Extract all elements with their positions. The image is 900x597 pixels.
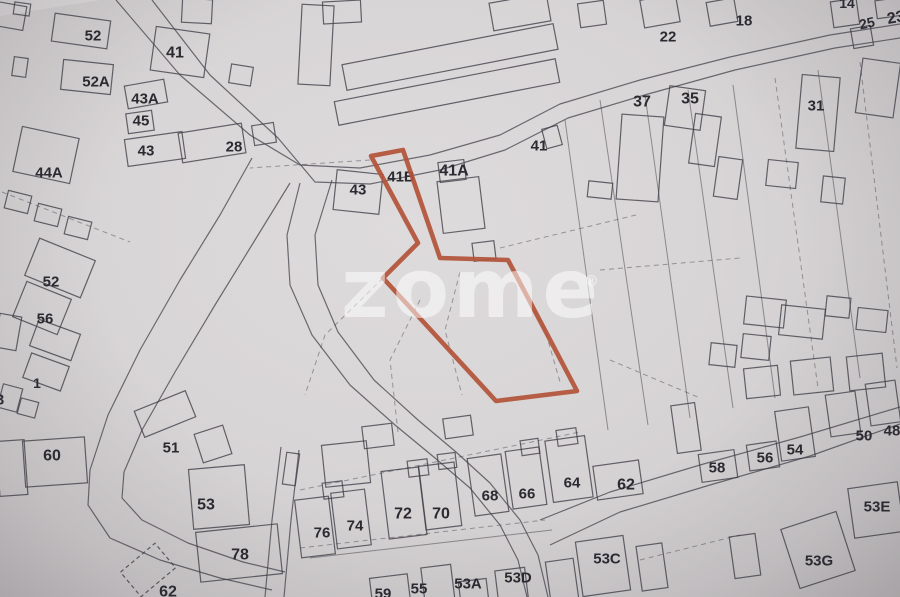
parcel-boundary-line (250, 160, 370, 168)
parcel-number-label: 52 (43, 274, 60, 291)
parcel-number-label: 58 (709, 460, 726, 477)
building-outline (587, 181, 613, 199)
building-outline (467, 454, 509, 516)
building-outline (51, 13, 110, 49)
building-outline (25, 238, 96, 298)
building-outline (846, 353, 885, 391)
parcel-boundary-line (600, 100, 648, 425)
parcel-number-label: 31 (808, 98, 825, 115)
parcel-number-label: 25 (858, 14, 877, 33)
building-outline (577, 0, 606, 27)
building-outline (636, 543, 668, 591)
parcel-number-label: 23 (886, 8, 900, 28)
building-outline (706, 0, 738, 26)
building-outline (12, 57, 29, 78)
building-outline (282, 452, 299, 485)
parcel-number-label: 62 (617, 477, 635, 494)
building-outline (437, 177, 485, 234)
building-outline (640, 0, 680, 28)
parcel-number-label: 78 (231, 547, 249, 564)
building-outline (334, 59, 559, 125)
parcel-boundary-line (600, 258, 740, 270)
parcel-number-label: 18 (736, 13, 753, 30)
building-outline (713, 157, 742, 200)
parcel-number-label: 56 (37, 311, 54, 328)
building-outline (671, 403, 701, 454)
building-outline (124, 132, 185, 167)
building-outline (64, 216, 92, 239)
parcel-number-label: 62 (159, 584, 177, 597)
parcel-number-label: 41 (166, 45, 184, 62)
parcel-number-label: 50 (856, 428, 873, 445)
parcel-number-label: 43 (138, 143, 155, 160)
parcel-number-label: 66 (519, 486, 536, 503)
cadastral-map-photo: 524152A43A45432844A525613605153786276747… (0, 0, 900, 597)
parcel-number-label: 43 (350, 182, 367, 199)
parcel-number-label: 70 (432, 506, 450, 523)
building-outline (825, 296, 851, 318)
parcel-number-label: 53G (805, 553, 833, 570)
parcel-number-label: 1 (33, 375, 41, 391)
parcel-number-label: 55 (411, 581, 428, 597)
parcel-boundary-line (775, 78, 818, 388)
building-outline (443, 415, 474, 439)
main-road-lower-edge (152, 0, 900, 184)
building-outline (616, 114, 664, 202)
building-outline (744, 365, 781, 398)
parcel-number-label: 37 (633, 94, 651, 111)
parcel-number-label: 45 (133, 113, 150, 130)
west-road-east-edge (122, 183, 290, 572)
building-outline (729, 533, 761, 578)
parcel-number-label: 64 (564, 475, 581, 492)
parcel-boundary-line (860, 62, 897, 368)
building-outline (545, 558, 578, 597)
parcel-number-label: 60 (43, 448, 61, 465)
building-outline (790, 357, 833, 395)
parcel-number-label: 48 (884, 423, 900, 440)
building-outline (545, 436, 593, 503)
map-canvas: 524152A43A45432844A525613605153786276747… (0, 0, 900, 597)
parcel-number-label: 53E (864, 499, 891, 516)
parcel-number-label: 74 (347, 518, 364, 535)
parcel-number-label: 54 (787, 442, 804, 459)
parcel-number-label: 22 (660, 29, 677, 46)
parcel-number-label: 52 (85, 28, 102, 45)
building-outline (252, 122, 277, 145)
building-outline (781, 512, 855, 589)
parcel-boundary-line (733, 85, 775, 398)
building-outline (689, 113, 722, 166)
parcel-boundary-line (818, 70, 860, 378)
parcel-number-label: 43A (131, 91, 159, 108)
building-outline (298, 4, 334, 86)
south-road-lower-edge (550, 424, 900, 545)
building-outline (17, 398, 39, 418)
parcel-number-label: 51 (163, 440, 180, 457)
building-outline (766, 160, 799, 189)
parcel-number-label: 59 (375, 586, 392, 597)
building-outline (34, 203, 62, 226)
building-outline (709, 343, 737, 368)
parcel-number-label: 41A (439, 163, 469, 180)
parcel-boundary-line (640, 535, 740, 560)
parcel-number-label: 56 (757, 450, 774, 467)
building-outline (181, 0, 212, 24)
building-outline (322, 0, 361, 24)
parcel-number-label: 52A (82, 74, 110, 91)
parcel-number-label: 53D (504, 570, 532, 587)
parcel-number-label: 72 (394, 506, 412, 523)
building-outline (855, 58, 900, 118)
parcel-number-label: 41 (531, 138, 548, 155)
building-outline (23, 353, 69, 391)
parcel-number-label: 53 (197, 497, 215, 514)
parcel-number-label: 53A (454, 576, 482, 593)
building-outline (229, 64, 254, 86)
building-outline (342, 24, 558, 91)
building-outline (437, 452, 457, 469)
building-outline (856, 307, 888, 332)
parcel-number-label: 76 (314, 525, 331, 542)
parcel-number-label: 35 (681, 91, 699, 108)
parcel-number-label: 53C (593, 551, 621, 568)
parcel-number-label: 68 (482, 488, 499, 505)
parcel-boundary-line (688, 90, 733, 408)
parcel-boundary-line (610, 360, 700, 398)
parcel-number-label: 28 (226, 139, 243, 156)
parcel-number-label: 14 (839, 0, 855, 11)
parcel-number-label: 3 (0, 392, 4, 409)
building-outline (134, 391, 195, 438)
parcel-number-label: 44A (35, 165, 63, 182)
zome-watermark-text: zome (341, 242, 602, 337)
registered-trademark-icon: ® (584, 272, 599, 290)
building-outline (0, 440, 28, 497)
parcel-boundary-line (645, 95, 690, 418)
building-outline (194, 425, 232, 463)
